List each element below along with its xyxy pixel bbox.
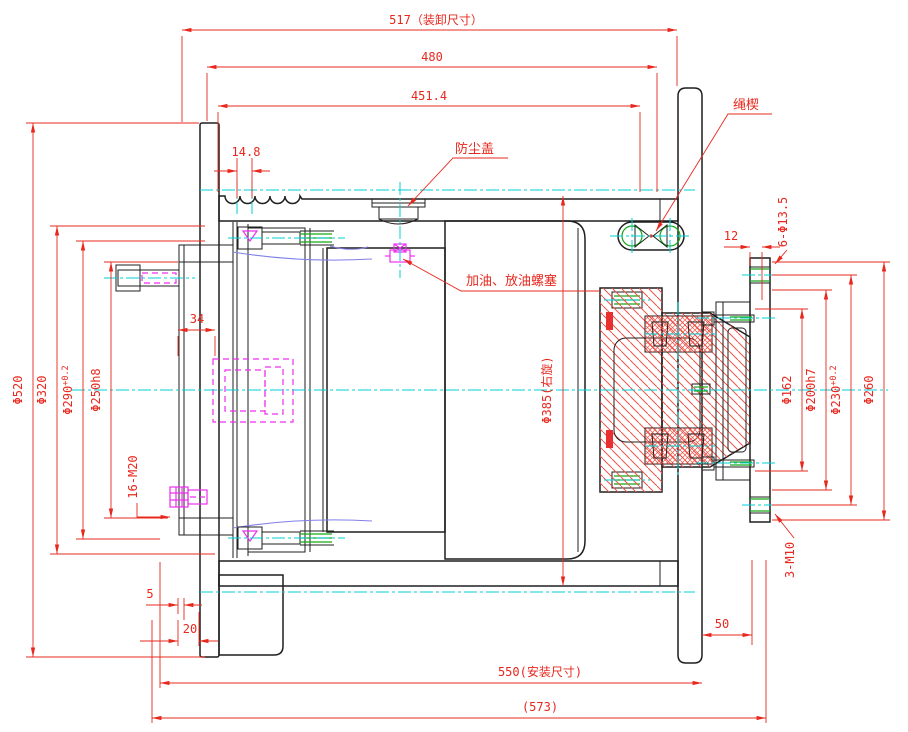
dim-148-label: 14.8 [232,145,261,159]
left-bolt-m20 [170,487,207,507]
drum-barrel-bottom [219,561,678,586]
dim-520-label: Φ520 [11,376,25,405]
dim-250-label: Φ250h8 [89,368,103,411]
dim-16m20-label: 16-M20 [126,455,140,498]
seal-bottom [606,430,613,448]
dim-260-label: Φ260 [862,376,876,405]
dim-50-label: 50 [715,617,729,631]
dim-50: 50 [702,560,752,645]
dim-12: 12 [724,229,780,300]
dim-230-label: Φ230+0.2 [829,365,843,414]
centerlines [72,180,888,592]
dim-480: 480 [207,50,657,192]
dim-162-label: Φ162 [780,376,794,405]
dim-385-label: Φ385(右旋) [539,356,554,423]
callout-dust-cover: 防尘盖 [408,141,508,206]
dim-16m20: 16-M20 [126,455,170,517]
callout-dust-cover-label: 防尘盖 [455,141,494,157]
dim-517-label: 517（装卸尺寸） [389,12,483,27]
callout-rope-wedge: 绳楔 [656,98,772,231]
dim-3m10-label: 3-M10 [783,542,797,578]
seal-top [606,312,613,330]
dim-550-label: 550(安装尺寸) [498,664,582,679]
dim-5: 5 [146,587,202,620]
dim-573: (573) [152,560,766,723]
left-stud-top [116,265,179,291]
callout-rope-wedge-label: 绳楔 [733,98,759,113]
callout-oil-plug: 加油、放油螺塞 [403,259,600,291]
gear-mesh-arcs [233,246,372,528]
dim-34-label: 34 [190,312,204,326]
dim-290-label: Φ290+0.2 [61,365,75,414]
dim-480-label: 480 [421,50,443,64]
dim-385: Φ385(右旋) [539,196,563,586]
dim-12-label: 12 [724,229,738,243]
drum-barrel-top [219,196,678,221]
dim-4514: 451.4 [218,89,640,192]
dim-20-label: 20 [183,622,197,636]
left-flange-foot [219,575,283,655]
dim-6-135-label: 6-Φ13.5 [776,197,790,248]
dim-4514-label: 451.4 [411,89,447,103]
dim-320-label: Φ320 [35,376,49,405]
callout-oil-plug-label: 加油、放油螺塞 [466,273,557,289]
dim-6-135: 6-Φ13.5 [775,197,790,264]
bearing-top [645,316,715,352]
cad-drawing-canvas: 517（装卸尺寸） 480 451.4 14.8 34 Φ520 [0,0,908,732]
bearing-bottom [645,428,715,464]
dim-200-label: Φ200h7 [804,368,818,411]
dim-573-label: (573) [522,700,558,714]
dim-550: 550(安装尺寸) [160,562,702,688]
dim-3m10: 3-M10 [775,514,797,578]
dim-5-label: 5 [146,587,153,601]
